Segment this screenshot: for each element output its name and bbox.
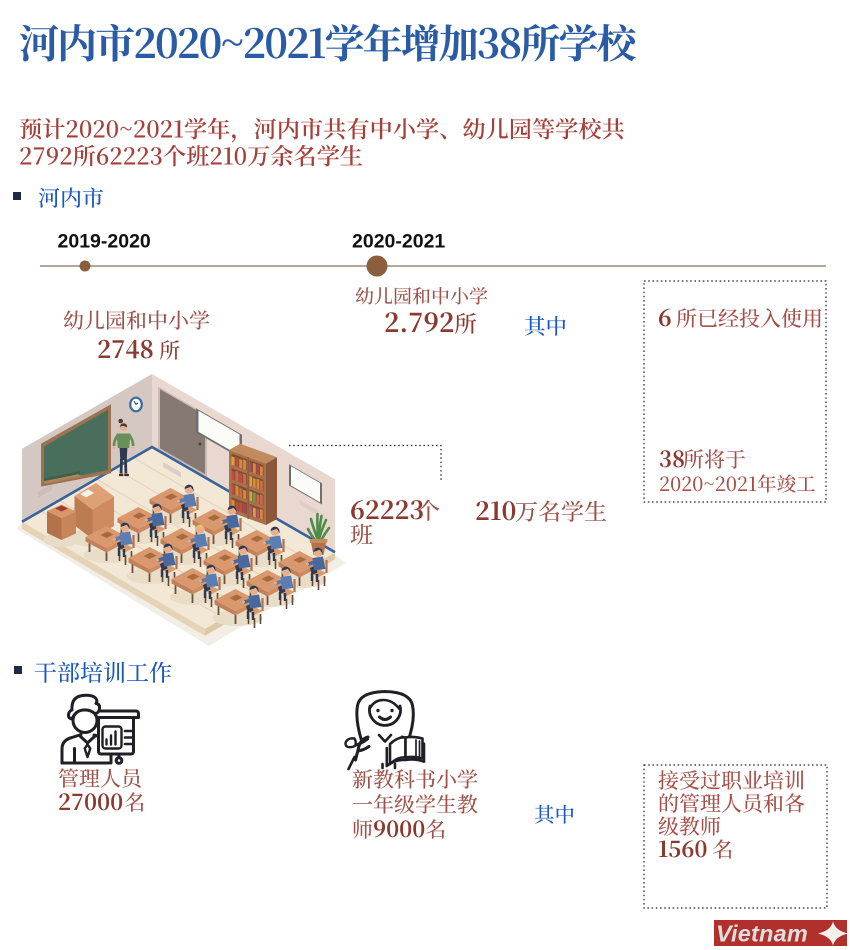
svg-text:Vietnam: Vietnam bbox=[716, 921, 808, 947]
svg-text:2019-2020: 2019-2020 bbox=[58, 231, 151, 253]
svg-text:2020-2021: 2020-2021 bbox=[352, 231, 445, 253]
